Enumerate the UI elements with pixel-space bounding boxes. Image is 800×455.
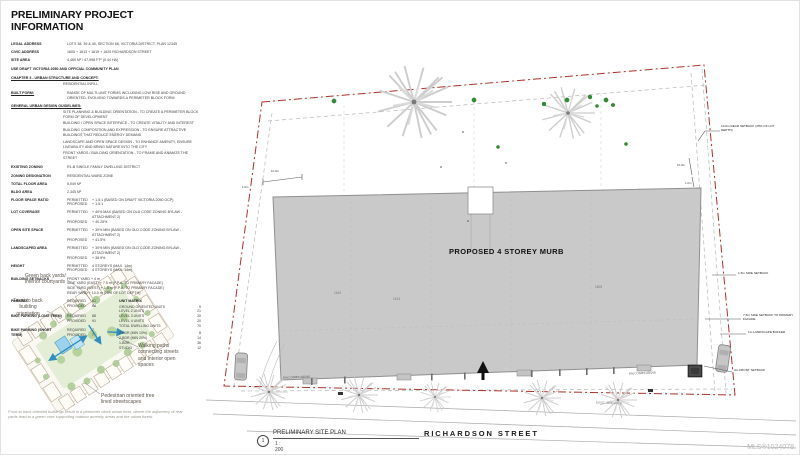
guideline-item: FRONT YARDS / BUILDING ORIENTATION - TO … — [63, 151, 201, 161]
ratio-label: OPEN SITE SPACE — [11, 228, 67, 243]
permitted-label: PERMITTED — [67, 246, 92, 256]
side-setback-primary-note: 7.5m SIDE SETBACK TO PRIMARY FACADE — [743, 314, 797, 322]
side-setback-note: 1.5m SIDE SETBACK — [738, 272, 796, 276]
ratio-label: LANDSCAPED AREA — [11, 246, 67, 261]
built-form-value: RANGE OF MULTI-UNIT FORMS INCLUDING LOW … — [67, 91, 201, 101]
lot-number: 1605 — [595, 285, 602, 289]
landscape-buffer-note: 1m LANDSCAPE BUFFER — [748, 331, 798, 335]
permitted-value: + 30% MIN (BASED ON OLD CODE ZONING BYLA… — [92, 246, 201, 256]
bike-short-label: BIKE PARKING (SHORT TERM) — [11, 328, 67, 338]
ratio-label: FLOOR SPACE RATIO — [11, 198, 67, 208]
ocp-line: USE DRAFT VICTORIA 2050 AND OFFICIAL COM… — [11, 67, 201, 71]
matrix-name: TOTAL DWELLING UNITS — [119, 324, 161, 329]
field-value: 4,460 M² / 47,998 FT² (0.44 HA) — [67, 58, 201, 63]
building-notch — [468, 187, 493, 214]
matrix-count: 12 — [194, 346, 201, 351]
page-title: PRELIMINARY PROJECT INFORMATION — [11, 9, 201, 33]
ratio-label: HEIGHT — [11, 264, 67, 274]
proposed-label: PROPOSED — [67, 220, 92, 225]
building-label: PROPOSED 4 STOREY MURB — [449, 247, 564, 256]
field-value: R1-B SINGLE FAMILY DWELLING DISTRICT — [67, 165, 201, 170]
dim-label: 1.5m — [242, 185, 248, 189]
car-right — [715, 344, 731, 372]
preliminary-site-plan-sheet: PROPOSED 4 STOREY MURB 1619 1613 1605 10… — [0, 0, 800, 455]
plan-scale: 1 : 200 — [275, 441, 283, 453]
provided-label: PROVIDED — [67, 304, 92, 309]
setbacks-label: BUILDING SETBACKS — [11, 277, 67, 296]
street-name: RICHARDSON STREET — [424, 429, 539, 438]
proposed-value: + 40.25% — [92, 220, 107, 225]
matrix-name: STUDIO — [119, 346, 132, 351]
plan-title: PRELIMINARY SITE PLAN — [273, 430, 419, 439]
permitted-value: + 30% MIN (BASED ON OLD CODE ZONING BYLA… — [92, 228, 201, 238]
field-label: BLDG AREA — [11, 190, 67, 195]
mls-watermark: MLS®1024078 — [747, 444, 794, 451]
guideline-item: BUILDING COMPOSITION AND EXPRESSION - TO… — [63, 128, 201, 138]
permitted-label: PERMITTED — [67, 210, 92, 220]
provided-value: 7 — [92, 333, 94, 338]
field-label: TOTAL FLOOR AREA — [11, 182, 67, 187]
field-label: SITE AREA — [11, 58, 67, 63]
project-info-panel: PRELIMINARY PROJECT INFORMATION LEGAL AD… — [11, 9, 201, 351]
proposed-value: + 1.5:1 — [92, 202, 103, 207]
rear-setback-note: 10.0m REAR SETBACK (25% OF LOT DEPTH) — [721, 125, 777, 133]
front-setback-note: 4m FRONT SETBACK — [734, 369, 789, 373]
permitted-value: + 1.5:1 (BASED ON DRAFT VICTORIA 2050 OC… — [92, 198, 173, 203]
provided-label: PROVIDED — [67, 333, 92, 338]
ratio-label: LOT COVERAGE — [11, 210, 67, 225]
lot-number: 1619 — [334, 291, 341, 295]
setback-line: REAR YARD + 10.0 m (25% OF LOT DEPTH) — [67, 291, 201, 296]
guideline-item: BUILDING / OPEN SPACE INTERFACE - TO CRE… — [63, 121, 201, 126]
chapter-value: RESIDENTIAL INFILL — [63, 82, 201, 87]
built-form-label: BUILT FORM: — [11, 91, 67, 101]
parking-block: PARKINGREQUIRED61PROVIDED64 BIKE PARKING… — [11, 299, 201, 351]
proposed-value: 4 STOREYS (MAX. 14m) — [92, 268, 132, 273]
dim-label: 1.0m — [685, 181, 691, 185]
field-label: ZONING DESIGNATION — [11, 174, 67, 179]
proposed-building — [273, 188, 701, 380]
bike-long-label: BIKE PARKING (LONG TERM) — [11, 314, 67, 324]
lot-number: 1613 — [393, 297, 400, 301]
guideline-item: LANDSCAPE AND OPEN SPACE DESIGN - TO ENH… — [63, 140, 201, 150]
permitted-label: PERMITTED — [67, 228, 92, 238]
proposed-value: + 38.9% — [92, 256, 105, 261]
dim-label: 10.0m — [677, 163, 685, 167]
field-value: LOTS 38, 39 & 40, SECTION 68, VICTORIA D… — [67, 42, 201, 47]
field-value: RESIDENTIAL WARD ZONE — [67, 174, 201, 179]
proposed-label: PROPOSED — [67, 202, 92, 207]
field-value: 5,049 M² — [67, 182, 201, 187]
field-label: CIVIC ADDRESS — [11, 50, 67, 55]
guidelines-heading: GENERAL URBAN DESIGN GUIDELINES: — [11, 104, 201, 108]
diagram-caption: Front to back oriented buildings result … — [8, 409, 190, 420]
dim-label: 10.0m — [271, 169, 279, 173]
provided-value: 64 — [92, 304, 96, 309]
unit-matrix-heading: UNIT MATRIX — [119, 299, 201, 303]
proposed-label: PROPOSED — [67, 256, 92, 261]
provided-label: PROVIDED — [67, 319, 92, 324]
field-label: LEGAL ADDRESS — [11, 42, 67, 47]
matrix-count: 70 — [194, 324, 201, 329]
car-left — [234, 353, 247, 381]
utility-box — [688, 365, 702, 377]
provided-value: 91 — [92, 319, 96, 324]
field-label: EXISTING ZONING — [11, 165, 67, 170]
diagram-label-pedestrian: Pedestrian oriented tree lined streetsca… — [101, 393, 163, 406]
proposed-label: PROPOSED — [67, 268, 92, 273]
unit-matrix: UNIT MATRIX GROUND ORIENTED UNITS9 LEVEL… — [119, 299, 201, 351]
proposed-value: + 41.5% — [92, 238, 105, 243]
parking-label: PARKING — [11, 299, 67, 309]
field-value: 1605 + 1613 + 1619 + 1625 RICHARDSON STR… — [67, 50, 201, 55]
permitted-value: + 40% MAX (BASED ON OLD CODE ZONING BYLA… — [92, 210, 201, 220]
shrub-dots — [332, 95, 628, 149]
plan-number-bubble: 1 — [257, 435, 269, 447]
field-value: 2,345 M² — [67, 190, 201, 195]
chapter-heading: CHAPTER 3 - URBAN STRUCTURE AND CONCEPT: — [11, 76, 201, 80]
guideline-item: SITE PLANNING & BUILDING ORIENTATION - T… — [63, 110, 201, 120]
proposed-label: PROPOSED — [67, 238, 92, 243]
street-lines — [206, 400, 796, 448]
